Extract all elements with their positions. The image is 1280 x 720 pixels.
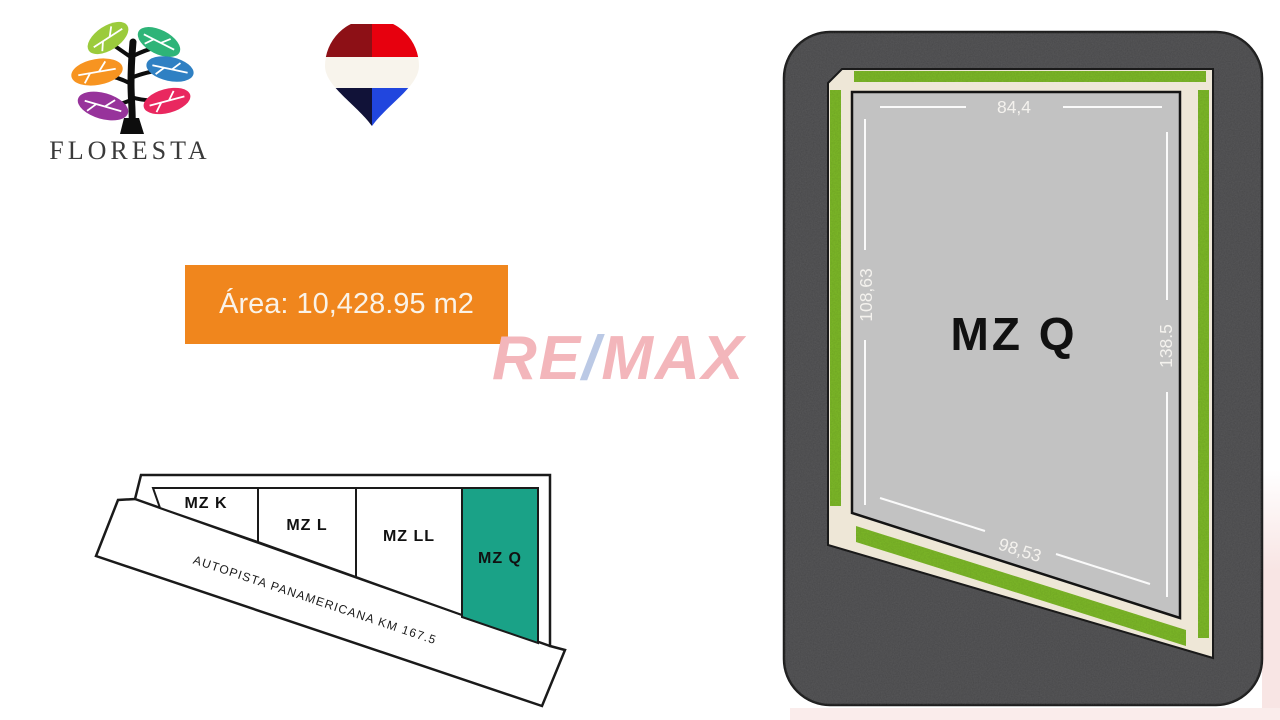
tree-icon <box>56 12 206 134</box>
area-text: Área: 10,428.95 m2 <box>219 288 474 321</box>
map-lot-mzq-label: MZ Q <box>478 550 522 567</box>
dimension-right: 138.5 <box>1156 324 1176 368</box>
leaf-purple <box>74 86 131 125</box>
remax-watermark: RE/MAX <box>492 326 792 396</box>
mini-map: MZ K MZ L MZ LL MZ Q AUTOPISTA PANAMERIC… <box>85 462 585 717</box>
pin-band-blue <box>372 88 429 126</box>
area-banner: Área: 10,428.95 m2 <box>185 265 508 344</box>
map-lot-mzk-label: MZ K <box>184 495 227 512</box>
pin-band-red <box>372 24 429 57</box>
tree-roots <box>120 118 144 134</box>
watermark-slash: / <box>582 324 601 393</box>
map-lot-mzll-label: MZ LL <box>383 528 435 545</box>
watermark-max: MAX <box>601 324 745 393</box>
pin-band-navy <box>315 88 372 126</box>
dimension-left: 108,63 <box>856 268 876 322</box>
leaf-orange <box>69 55 125 90</box>
map-lot-mzl-label: MZ L <box>286 517 327 534</box>
lot-mzq-label: MZ Q <box>951 308 1078 360</box>
remax-balloon-pin-icon <box>315 24 429 126</box>
site-plan: 84,4 108,63 138.5 98,53 MZ Q <box>778 26 1278 716</box>
watermark-re: RE <box>492 324 582 393</box>
leaf-blue <box>144 52 196 85</box>
floresta-wordmark: FLORESTA <box>46 136 214 166</box>
pin-band-red-dark <box>315 24 372 57</box>
dimension-top: 84,4 <box>997 97 1031 117</box>
pin-band-white <box>315 57 429 88</box>
leaf-crimson <box>141 83 194 119</box>
floresta-logo: FLORESTA <box>46 10 214 162</box>
